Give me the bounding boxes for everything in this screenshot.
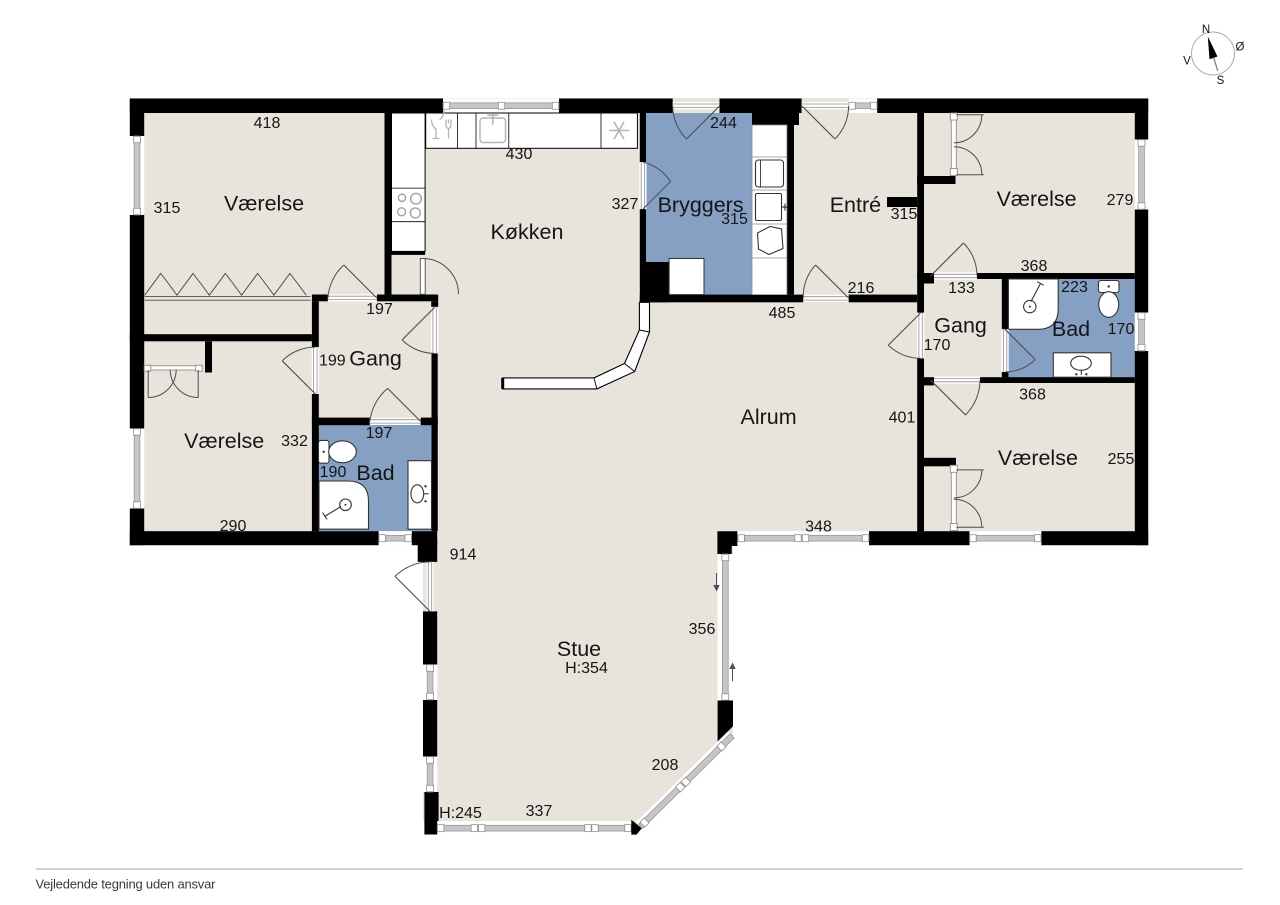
svg-text:208: 208 <box>652 757 679 774</box>
svg-text:199: 199 <box>319 353 346 370</box>
svg-text:Gang: Gang <box>934 313 987 337</box>
svg-text:348: 348 <box>805 519 832 536</box>
svg-text:315: 315 <box>721 211 748 228</box>
svg-text:V: V <box>1183 56 1191 68</box>
svg-text:290: 290 <box>220 518 247 535</box>
svg-text:216: 216 <box>848 280 875 297</box>
svg-text:315: 315 <box>891 206 918 223</box>
svg-text:197: 197 <box>366 425 393 442</box>
svg-text:Vejledende tegning uden ansvar: Vejledende tegning uden ansvar <box>36 877 217 892</box>
svg-text:430: 430 <box>506 146 533 163</box>
svg-text:190: 190 <box>320 464 347 481</box>
svg-text:255: 255 <box>1108 451 1135 468</box>
svg-text:315: 315 <box>154 200 181 217</box>
svg-text:368: 368 <box>1021 258 1048 275</box>
svg-text:Værelse: Værelse <box>998 446 1078 470</box>
svg-text:Bad: Bad <box>1052 317 1090 341</box>
svg-text:Køkken: Køkken <box>491 220 564 244</box>
svg-text:H:354: H:354 <box>565 660 608 677</box>
svg-text:H:245: H:245 <box>439 805 482 822</box>
svg-text:Alrum: Alrum <box>741 405 797 429</box>
svg-text:418: 418 <box>254 115 281 132</box>
svg-text:Ø: Ø <box>1236 42 1245 54</box>
svg-text:Værelse: Værelse <box>184 429 264 453</box>
svg-text:332: 332 <box>281 433 308 450</box>
svg-text:337: 337 <box>526 803 553 820</box>
svg-text:356: 356 <box>689 621 716 638</box>
svg-text:133: 133 <box>948 280 975 297</box>
svg-text:S: S <box>1217 75 1225 87</box>
svg-text:170: 170 <box>924 337 951 354</box>
svg-text:Værelse: Værelse <box>997 187 1077 211</box>
svg-text:327: 327 <box>612 196 639 213</box>
svg-text:368: 368 <box>1019 387 1046 404</box>
svg-text:244: 244 <box>710 115 737 132</box>
svg-text:Entré: Entré <box>830 193 881 217</box>
svg-text:Stue: Stue <box>557 637 601 661</box>
svg-text:401: 401 <box>889 410 916 427</box>
svg-text:485: 485 <box>769 305 796 322</box>
svg-text:N: N <box>1202 24 1210 36</box>
svg-text:279: 279 <box>1107 192 1134 209</box>
svg-text:Værelse: Værelse <box>224 192 304 216</box>
svg-text:223: 223 <box>1061 279 1088 296</box>
svg-text:197: 197 <box>366 301 393 318</box>
svg-text:Gang: Gang <box>349 347 402 371</box>
svg-text:Bad: Bad <box>356 461 394 485</box>
svg-text:914: 914 <box>450 547 477 564</box>
svg-text:170: 170 <box>1108 321 1135 338</box>
